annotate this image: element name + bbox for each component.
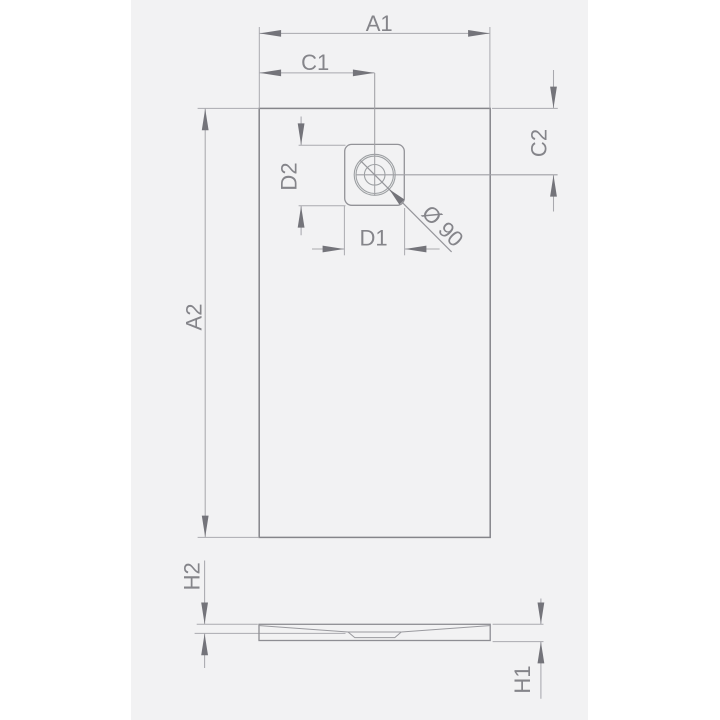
svg-text:D1: D1 — [359, 225, 387, 250]
svg-text:C2: C2 — [527, 129, 552, 157]
svg-text:H2: H2 — [179, 562, 204, 590]
svg-text:D2: D2 — [277, 162, 302, 190]
svg-text:A2: A2 — [182, 304, 207, 331]
svg-text:Ø 90: Ø 90 — [417, 200, 468, 251]
svg-text:H1: H1 — [510, 665, 535, 693]
svg-text:C1: C1 — [301, 50, 329, 75]
svg-text:A1: A1 — [366, 11, 393, 36]
